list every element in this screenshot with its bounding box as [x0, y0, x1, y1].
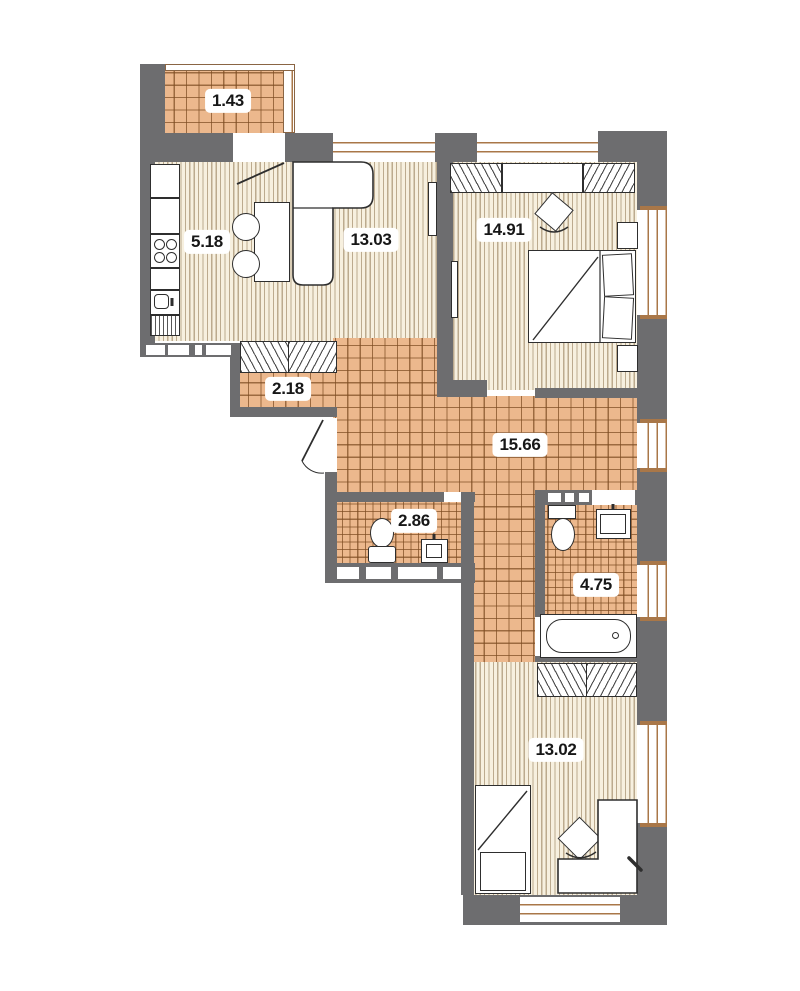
wall-segment — [140, 133, 233, 162]
pillow — [602, 296, 634, 340]
wall-segment — [461, 492, 474, 895]
wall-segment — [637, 131, 667, 210]
stove-burner — [154, 239, 165, 250]
vent — [579, 493, 589, 502]
room-label-kitchen: 5.18 — [184, 230, 230, 254]
window — [477, 135, 598, 160]
vent — [146, 345, 165, 355]
window — [640, 419, 667, 472]
room-label-wc: 2.86 — [391, 509, 437, 533]
basin-bowl — [600, 514, 626, 534]
tv — [451, 261, 458, 318]
toilet-bowl — [551, 518, 575, 551]
wardrobe — [450, 163, 502, 193]
wall-segment — [637, 315, 667, 423]
refrigerator — [150, 198, 180, 234]
wardrobe — [502, 163, 583, 193]
nightstand — [617, 345, 638, 372]
corridor-floor-main — [337, 396, 637, 492]
wall-segment — [140, 64, 165, 133]
chair — [232, 213, 260, 241]
wall-segment — [230, 407, 337, 417]
vent — [548, 493, 561, 502]
kitchen-cabinet — [150, 164, 180, 198]
wall-segment — [535, 388, 637, 398]
dining-table — [254, 202, 290, 282]
entry-door-leaf — [302, 420, 323, 461]
vent — [366, 567, 391, 579]
basin-bowl — [426, 544, 442, 558]
stove-burner — [154, 252, 165, 263]
window — [333, 135, 435, 160]
pillow — [602, 253, 634, 297]
balcony-glazing — [283, 70, 295, 133]
vent — [337, 567, 359, 579]
room-label-hallway: 2.18 — [265, 377, 311, 401]
wall-segment — [335, 492, 444, 502]
wardrobe — [583, 163, 635, 193]
balcony-glazing — [165, 64, 295, 71]
window — [640, 206, 667, 319]
window — [520, 897, 620, 922]
stove — [150, 234, 180, 268]
vent — [443, 567, 461, 579]
vent — [195, 345, 202, 355]
room-label-corridor: 15.66 — [492, 433, 547, 457]
vent — [398, 567, 437, 579]
room-label-bedroom: 14.91 — [476, 218, 531, 242]
entry-door-arc — [302, 461, 324, 473]
wall-segment — [285, 133, 333, 162]
sink-basin — [154, 294, 169, 309]
bathroom-door-opening — [592, 490, 635, 505]
nightstand — [617, 222, 638, 249]
tv — [428, 182, 437, 236]
window — [640, 721, 667, 827]
window — [640, 561, 667, 621]
radiator — [150, 315, 180, 336]
wall-segment — [437, 380, 487, 397]
wardrobe — [537, 663, 587, 697]
wall-segment — [466, 492, 475, 502]
toilet-base — [368, 546, 396, 563]
room-label-bedroom2: 13.02 — [528, 738, 583, 762]
stove-burner — [166, 239, 177, 250]
floor-plan: 1.43 5.18 13.03 14.91 2.18 15.66 2.86 4.… — [0, 0, 800, 991]
kitchen-cabinet — [150, 268, 180, 290]
room-label-bathroom: 4.75 — [573, 573, 619, 597]
wardrobe — [240, 341, 289, 373]
room-label-living: 13.03 — [343, 228, 398, 252]
bathtub-drain — [612, 632, 619, 639]
wall-segment — [637, 617, 667, 725]
wall-segment — [535, 492, 545, 617]
wardrobe — [586, 663, 637, 697]
stove-burner — [166, 252, 177, 263]
wall-segment — [637, 468, 667, 565]
vent — [168, 345, 189, 355]
vent — [565, 493, 574, 502]
corridor-floor-down — [474, 490, 535, 662]
toilet-tank — [548, 505, 576, 519]
chair — [232, 250, 260, 278]
vent — [206, 345, 231, 355]
wall-segment — [230, 343, 240, 417]
room-label-balcony: 1.43 — [205, 89, 251, 113]
wardrobe — [288, 341, 337, 373]
pillow — [480, 852, 526, 891]
